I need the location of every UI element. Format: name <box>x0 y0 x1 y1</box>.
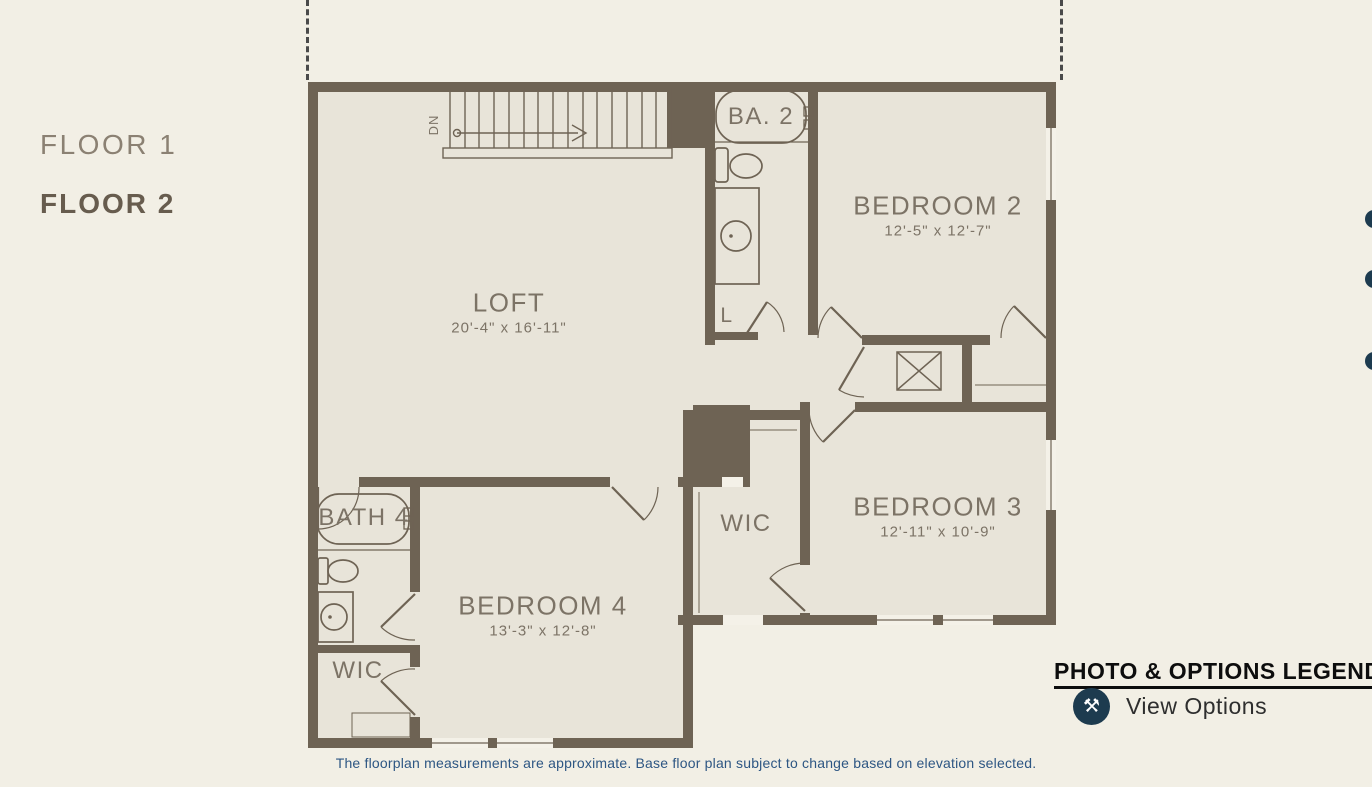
room-label-bath2: BA. 2 <box>728 102 794 132</box>
floor-fill <box>308 82 1056 748</box>
room-name: BEDROOM 4 <box>458 589 628 622</box>
edge-partial-button-2[interactable] <box>1365 270 1372 288</box>
floorplan-page: FLOOR 1 FLOOR 2 <box>0 0 1372 787</box>
room-name: BEDROOM 2 <box>853 189 1023 222</box>
room-name: BEDROOM 3 <box>853 490 1023 523</box>
stair-dn-label: DN <box>426 115 442 136</box>
view-options-label: View Options <box>1126 693 1267 720</box>
room-label-wic-lower: WIC <box>332 656 383 686</box>
dashed-guide-right <box>1060 0 1063 80</box>
room-dims: 12'-5" x 12'-7" <box>853 222 1023 241</box>
room-label-bedroom2: BEDROOM 2 12'-5" x 12'-7" <box>853 189 1023 240</box>
edge-partial-button-1[interactable] <box>1365 210 1372 228</box>
room-label-linen-closet: L <box>720 303 733 329</box>
dashed-guide-left <box>306 0 309 80</box>
room-dims: 13'-3" x 12'-8" <box>458 622 628 641</box>
room-label-bath4: BATH 4 <box>318 503 409 533</box>
room-label-bedroom3: BEDROOM 3 12'-11" x 10'-9" <box>853 490 1023 541</box>
room-dims: 20'-4" x 16'-11" <box>451 319 567 338</box>
floorplan-drawing <box>307 80 1063 748</box>
disclaimer-text: The floorplan measurements are approxima… <box>307 755 1065 771</box>
floorplan-canvas <box>307 80 1063 748</box>
legend-title: PHOTO & OPTIONS LEGEND <box>1054 658 1372 689</box>
sidebar-item-floor-2[interactable]: FLOOR 2 <box>40 188 175 220</box>
edge-partial-button-3[interactable] <box>1365 352 1372 370</box>
sidebar-item-floor-1[interactable]: FLOOR 1 <box>40 129 177 161</box>
tools-icon: ⚒ <box>1073 688 1110 725</box>
room-label-loft: LOFT 20'-4" x 16'-11" <box>451 286 567 337</box>
room-name: LOFT <box>451 286 567 319</box>
view-options-button[interactable]: ⚒ View Options <box>1073 688 1267 725</box>
room-dims: 12'-11" x 10'-9" <box>853 523 1023 542</box>
room-label-bedroom4: BEDROOM 4 13'-3" x 12'-8" <box>458 589 628 640</box>
room-label-wic-center: WIC <box>720 509 771 539</box>
